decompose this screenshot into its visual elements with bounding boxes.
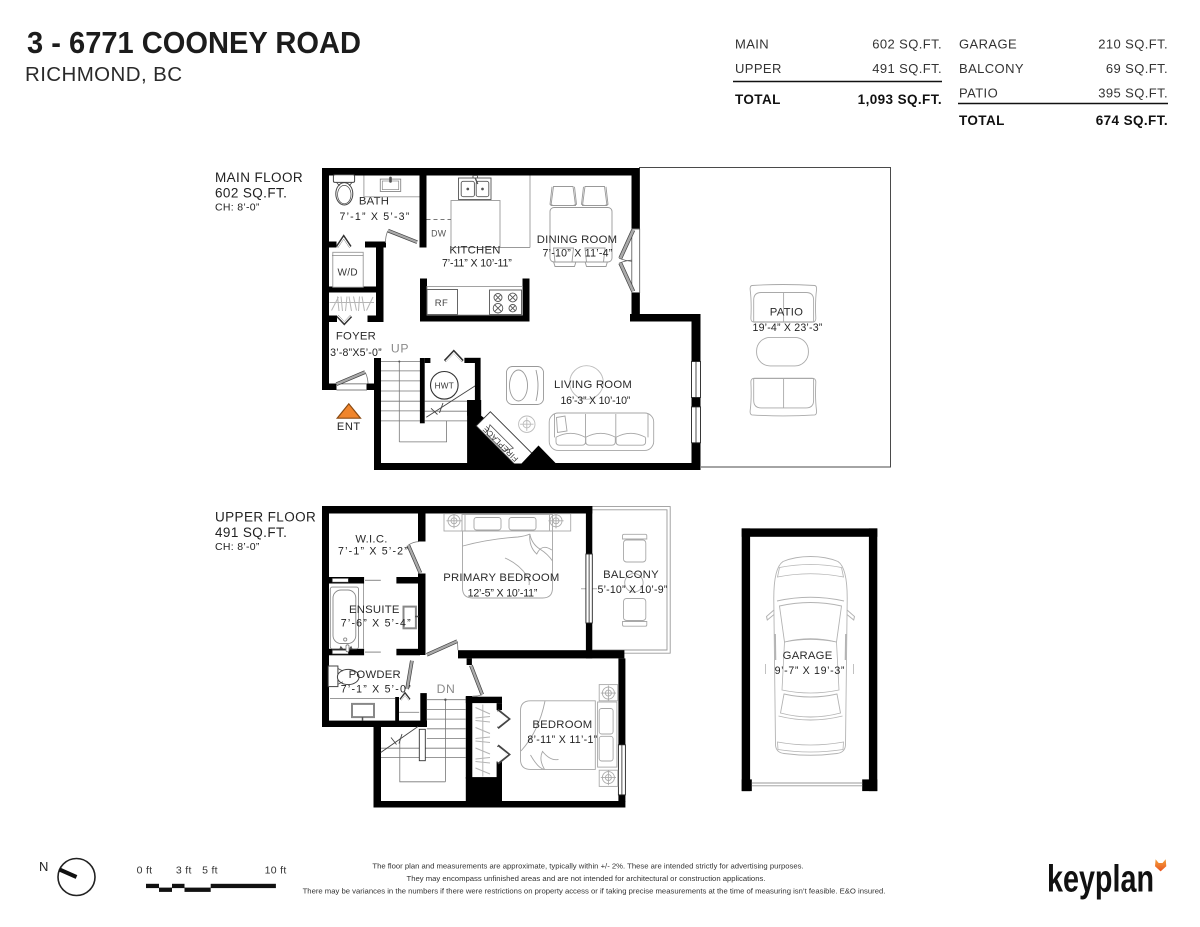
- svg-text:395 SQ.FT.: 395 SQ.FT.: [1098, 86, 1168, 101]
- svg-text:BATH: BATH: [359, 196, 389, 208]
- svg-text:DW: DW: [431, 229, 447, 239]
- svg-text:491 SQ.FT.: 491 SQ.FT.: [215, 525, 287, 540]
- svg-text:The floor plan and measurement: The floor plan and measurements are appr…: [372, 862, 803, 871]
- svg-text:3’-8”X5’-0”: 3’-8”X5’-0”: [330, 347, 382, 359]
- svg-text:keyplan: keyplan: [1047, 858, 1154, 900]
- svg-text:DINING ROOM: DINING ROOM: [537, 234, 618, 246]
- svg-text:19’-4” X 23’-3”: 19’-4” X 23’-3”: [753, 322, 823, 334]
- svg-text:5 ft: 5 ft: [202, 865, 218, 877]
- svg-text:PATIO: PATIO: [770, 307, 803, 319]
- svg-text:BALCONY: BALCONY: [603, 569, 659, 581]
- svg-text:GARAGE: GARAGE: [959, 37, 1017, 52]
- svg-text:7’-11” X 10’-11”: 7’-11” X 10’-11”: [442, 258, 512, 270]
- svg-text:KITCHEN: KITCHEN: [449, 245, 500, 257]
- svg-text:210 SQ.FT.: 210 SQ.FT.: [1098, 37, 1168, 52]
- svg-text:POWDER: POWDER: [349, 669, 401, 681]
- svg-text:W.I.C.: W.I.C.: [355, 533, 387, 545]
- svg-text:3 - 6771 COONEY ROAD: 3 - 6771 COONEY ROAD: [27, 25, 361, 60]
- svg-text:10 ft: 10 ft: [265, 865, 287, 877]
- svg-text:PATIO: PATIO: [959, 86, 998, 101]
- svg-text:7’-1” X 5’-3”: 7’-1” X 5’-3”: [340, 211, 410, 223]
- svg-text:FOYER: FOYER: [336, 331, 376, 343]
- svg-text:9’-7” X 19’-3”: 9’-7” X 19’-3”: [775, 665, 845, 677]
- svg-text:TOTAL: TOTAL: [735, 92, 781, 107]
- svg-text:0 ft: 0 ft: [137, 865, 153, 877]
- svg-text:W/D: W/D: [338, 268, 358, 279]
- svg-text:BEDROOM: BEDROOM: [532, 719, 592, 731]
- svg-text:7’-10” X 11’-4”: 7’-10” X 11’-4”: [543, 248, 613, 260]
- svg-text:7’-1” X 5’-0”: 7’-1” X 5’-0”: [341, 684, 411, 696]
- svg-text:They may encompass unfinished: They may encompass unfinished areas and …: [407, 874, 766, 883]
- svg-text:7’-1” X 5’-2”: 7’-1” X 5’-2”: [338, 546, 408, 558]
- svg-text:RF: RF: [435, 298, 448, 309]
- svg-text:7’-6” X 5’-4”: 7’-6” X 5’-4”: [341, 618, 411, 630]
- svg-text:8’-11” X 11’-1”: 8’-11” X 11’-1”: [527, 734, 597, 746]
- svg-text:N: N: [39, 859, 49, 874]
- svg-text:LIVING ROOM: LIVING ROOM: [554, 379, 632, 391]
- svg-text:UPPER FLOOR: UPPER FLOOR: [215, 510, 316, 525]
- svg-text:CH: 8’-0”: CH: 8’-0”: [215, 202, 260, 214]
- svg-text:CH: 8’-0”: CH: 8’-0”: [215, 541, 260, 553]
- svg-text:HWT: HWT: [435, 381, 454, 390]
- svg-text:1,093 SQ.FT.: 1,093 SQ.FT.: [858, 92, 942, 107]
- svg-text:602 SQ.FT.: 602 SQ.FT.: [872, 37, 942, 52]
- svg-text:491 SQ.FT.: 491 SQ.FT.: [872, 61, 942, 76]
- svg-text:UPPER: UPPER: [735, 61, 782, 76]
- svg-text:MAIN FLOOR: MAIN FLOOR: [215, 170, 303, 185]
- svg-text:PRIMARY BEDROOM: PRIMARY BEDROOM: [443, 572, 559, 584]
- svg-text:RICHMOND, BC: RICHMOND, BC: [25, 63, 182, 86]
- svg-text:674 SQ.FT.: 674 SQ.FT.: [1096, 113, 1168, 128]
- svg-text:3 ft: 3 ft: [176, 865, 192, 877]
- svg-text:69 SQ.FT.: 69 SQ.FT.: [1106, 61, 1168, 76]
- svg-text:BALCONY: BALCONY: [959, 61, 1024, 76]
- svg-text:ENT: ENT: [337, 421, 361, 433]
- svg-text:GARAGE: GARAGE: [783, 650, 833, 662]
- svg-text:DN: DN: [437, 682, 456, 696]
- svg-text:MAIN: MAIN: [735, 37, 769, 52]
- svg-text:5’-10” X 10’-9”: 5’-10” X 10’-9”: [598, 584, 668, 596]
- svg-text:602 SQ.FT.: 602 SQ.FT.: [215, 185, 287, 200]
- svg-text:12’-5” X 10’-11”: 12’-5” X 10’-11”: [468, 587, 538, 599]
- svg-text:There may be variances in the: There may be variances in the numbers if…: [303, 887, 886, 896]
- svg-text:TOTAL: TOTAL: [959, 113, 1005, 128]
- svg-text:UP: UP: [391, 342, 409, 356]
- svg-text:16’-3” X 10’-10”: 16’-3” X 10’-10”: [561, 395, 631, 407]
- svg-text:ENSUITE: ENSUITE: [349, 604, 400, 616]
